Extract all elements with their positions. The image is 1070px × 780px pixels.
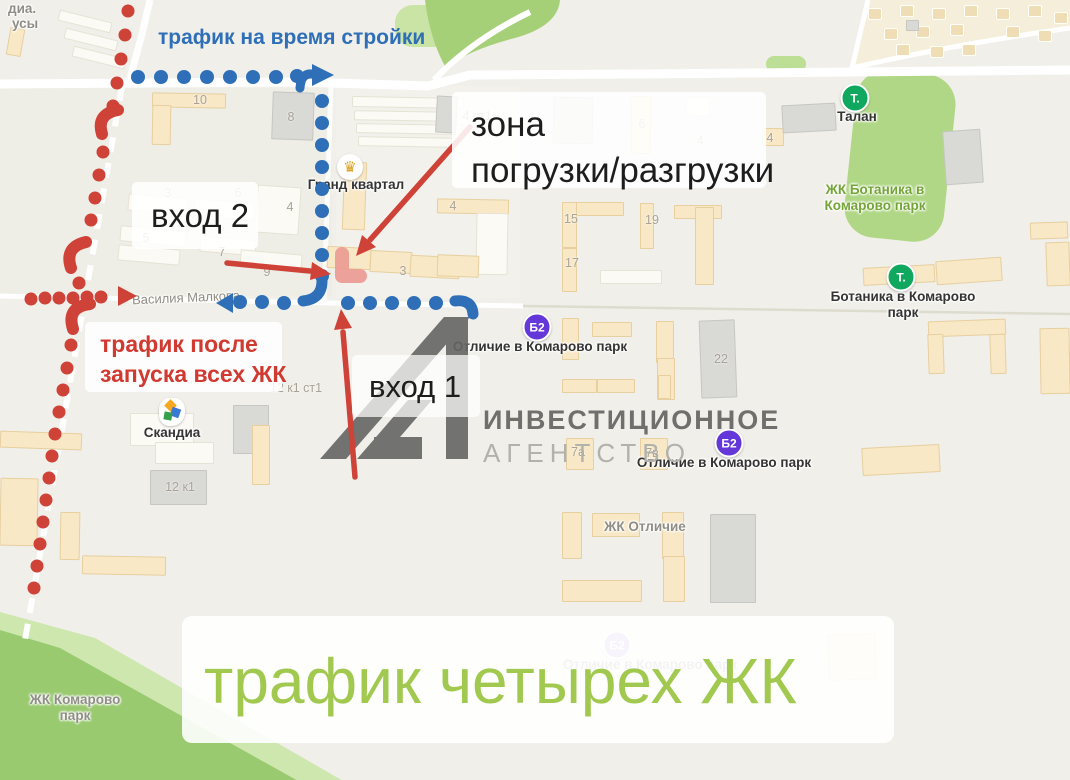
route-dot xyxy=(43,472,56,485)
route-dot xyxy=(315,94,329,108)
route-dot xyxy=(49,428,62,441)
route-dot xyxy=(315,160,329,174)
red-route-label: трафик после запуска всех ЖК xyxy=(100,330,286,390)
route-dot xyxy=(61,362,74,375)
route-dot xyxy=(28,582,41,595)
route-dot xyxy=(39,292,52,305)
route-dot xyxy=(407,296,421,310)
red-route-arrowhead xyxy=(118,286,137,306)
route-dot xyxy=(177,70,191,84)
red-route-label-line1: трафик после xyxy=(100,330,286,360)
route-dot xyxy=(95,291,108,304)
route-dot xyxy=(315,204,329,218)
route-dot xyxy=(233,295,247,309)
route-dot xyxy=(25,293,38,306)
route-dot xyxy=(34,538,47,551)
route-dot xyxy=(246,70,260,84)
route-dot xyxy=(97,146,110,159)
route-dot xyxy=(37,516,50,529)
route-dot xyxy=(65,339,78,352)
route-dot xyxy=(363,296,377,310)
route-dot xyxy=(429,296,443,310)
route-dot xyxy=(111,77,124,90)
route-dot xyxy=(73,277,86,290)
route-dot xyxy=(131,70,145,84)
route-dot xyxy=(31,560,44,573)
route-dot xyxy=(315,138,329,152)
loading-zone-label: зона погрузки/разгрузки xyxy=(471,102,774,193)
route-dot xyxy=(85,214,98,227)
route-dot xyxy=(53,406,66,419)
route-dot xyxy=(119,29,132,42)
route-dot xyxy=(115,53,128,66)
arrow-from-entrance2 xyxy=(227,263,310,271)
route-dot xyxy=(315,248,329,262)
blue-route-label: трафик на время стройки xyxy=(158,26,425,50)
route-dot xyxy=(154,70,168,84)
route-dot xyxy=(53,292,66,305)
route-dot xyxy=(269,70,283,84)
route-dot xyxy=(277,296,291,310)
route-dot xyxy=(89,192,102,205)
loading-zone-line2: погрузки/разгрузки xyxy=(471,148,774,194)
loading-zone-line1: зона xyxy=(471,102,774,148)
loading-zone-marker xyxy=(342,254,360,276)
map-canvas[interactable]: 10836457934 ст16444151917227а7в12 к1 ст1… xyxy=(0,0,1070,780)
route-dot xyxy=(341,296,355,310)
route-dot xyxy=(315,116,329,130)
route-dot xyxy=(223,70,237,84)
red-route-label-line2: запуска всех ЖК xyxy=(100,360,286,390)
green-caption: трафик четырех ЖК xyxy=(204,644,797,718)
route-dot xyxy=(122,5,135,18)
route-dot xyxy=(315,182,329,196)
route-dot xyxy=(385,296,399,310)
route-dot xyxy=(57,384,70,397)
route-dot xyxy=(40,494,53,507)
route-dot xyxy=(315,226,329,240)
entrance1-label: вход 1 xyxy=(369,369,461,405)
route-dot xyxy=(46,450,59,463)
entrance2-label: вход 2 xyxy=(151,197,249,235)
route-dot xyxy=(255,295,269,309)
route-dot xyxy=(93,169,106,182)
route-dot xyxy=(200,70,214,84)
